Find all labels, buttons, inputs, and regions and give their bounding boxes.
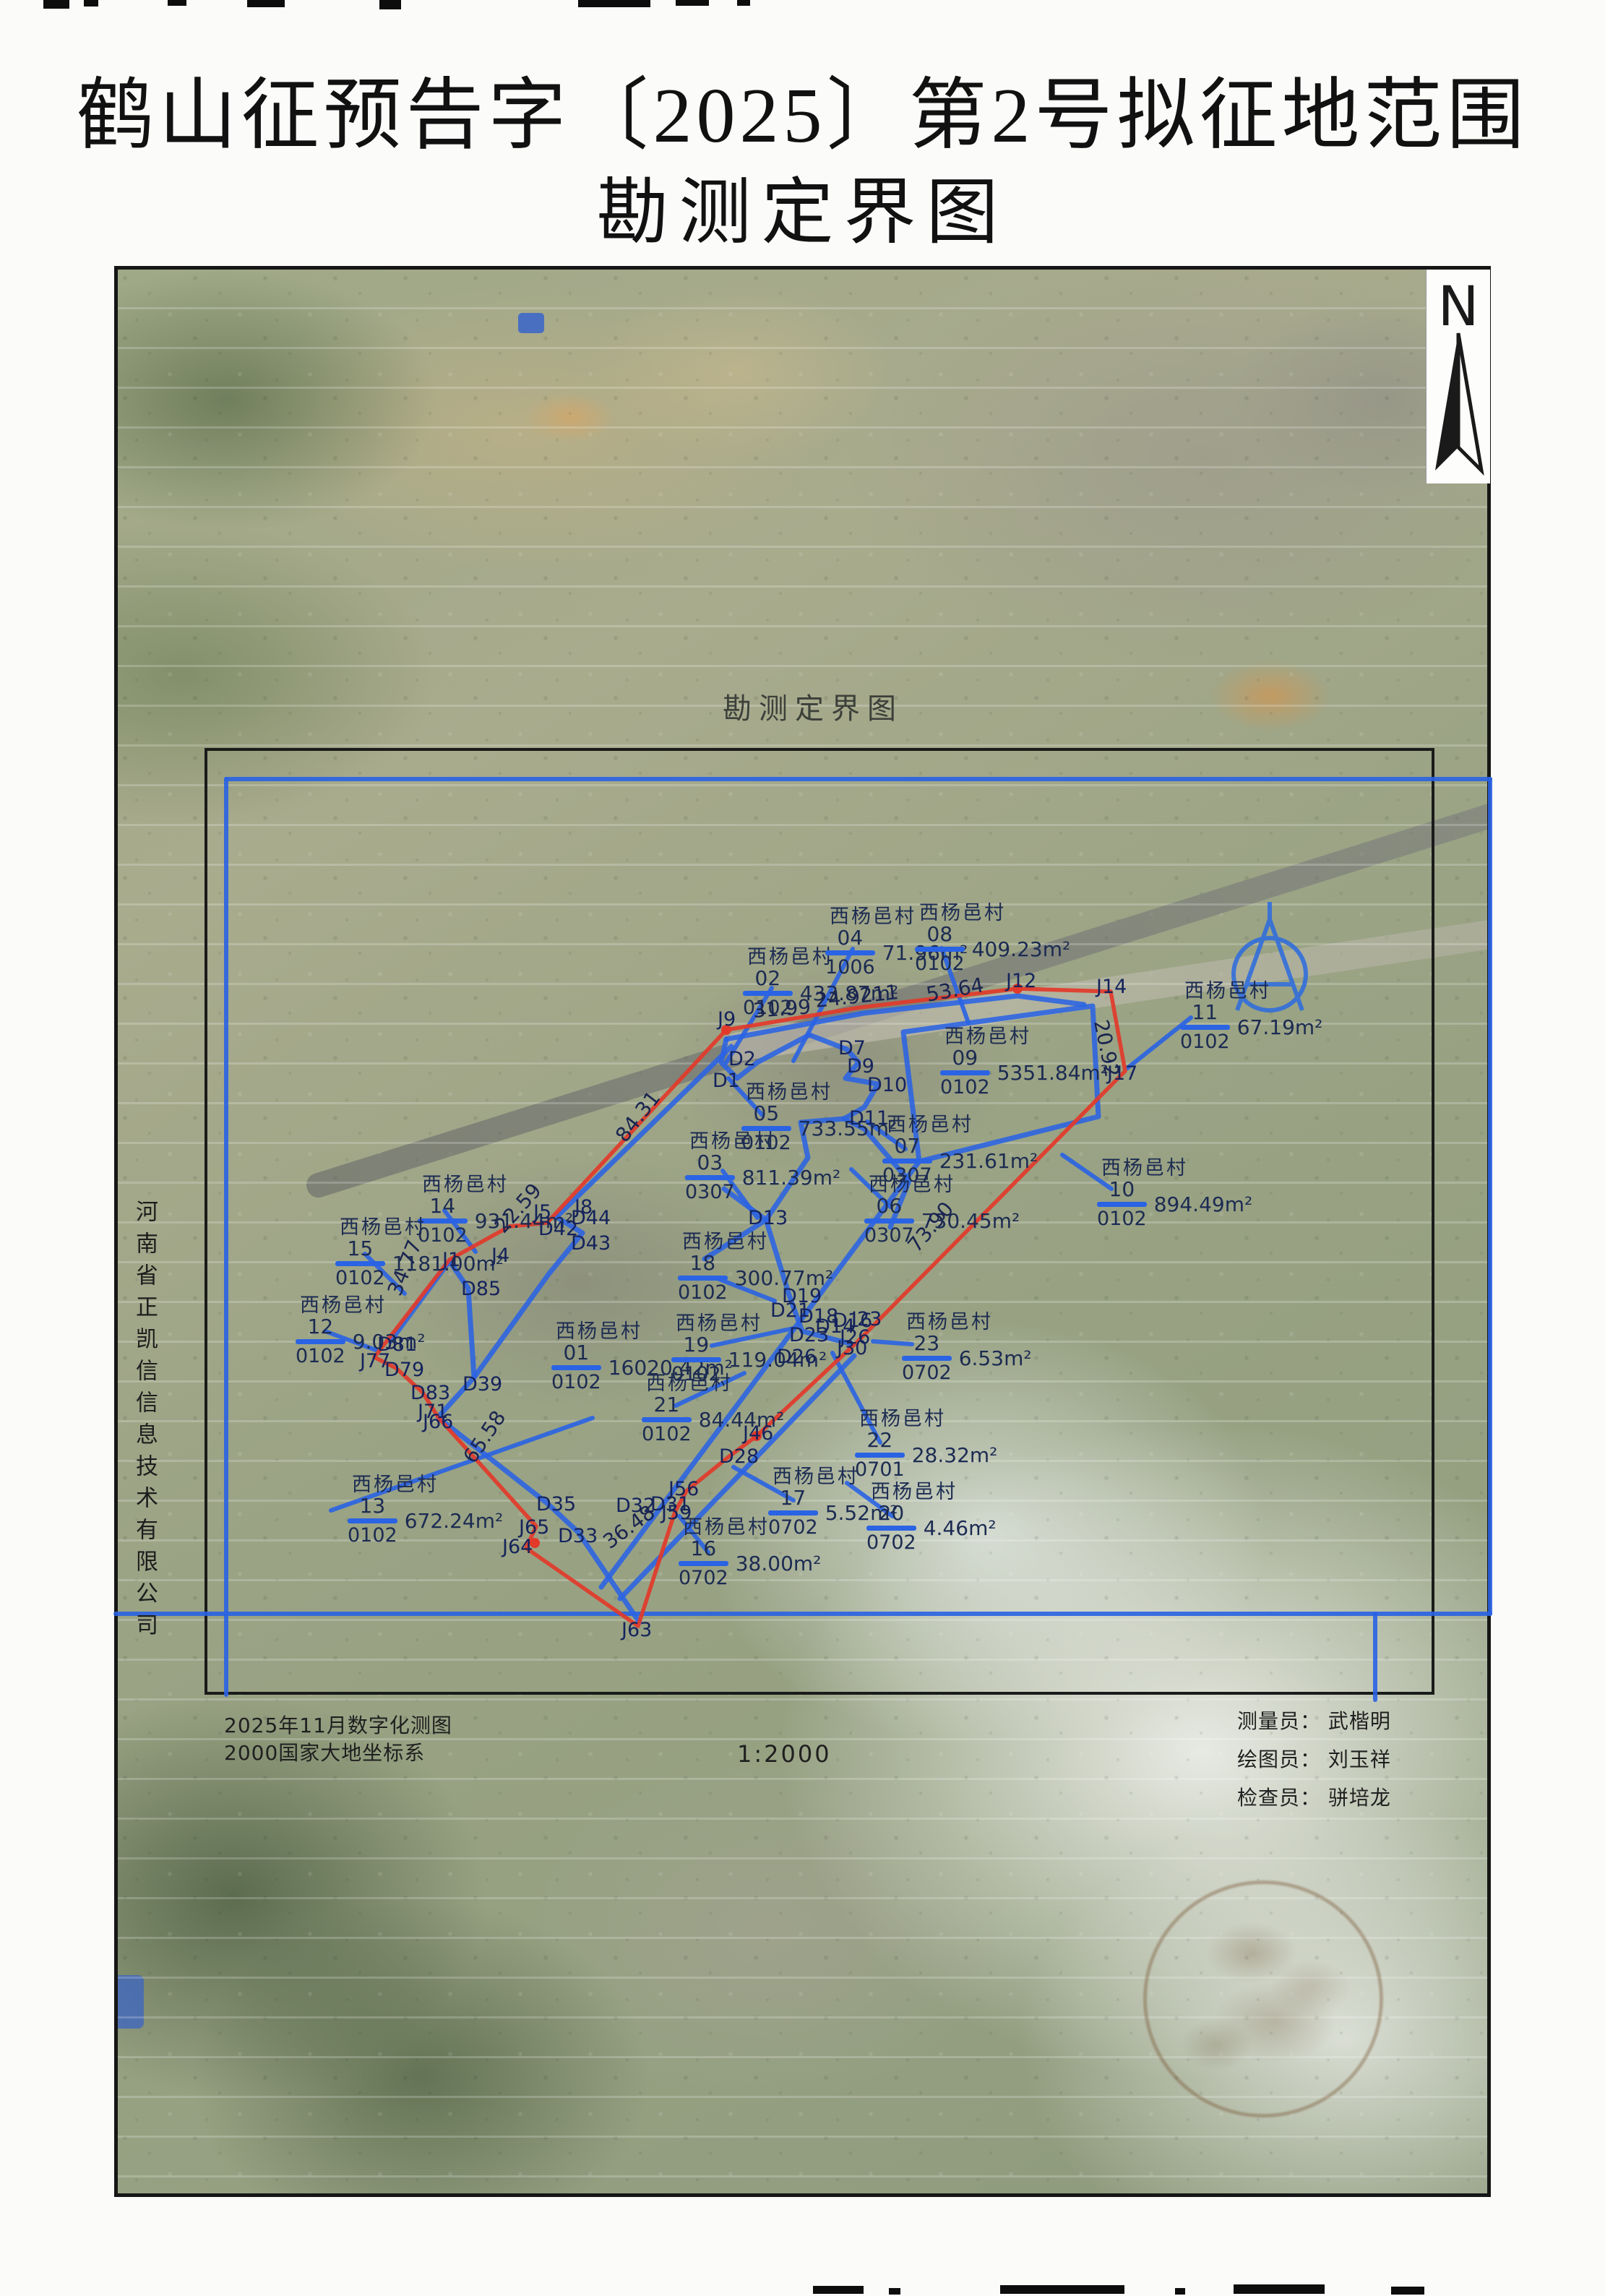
scan-artifact xyxy=(1000,2285,1124,2294)
scan-artifact xyxy=(379,0,401,9)
scan-artifact xyxy=(813,2286,864,2294)
company-name-vertical: 河南省正凯信信息技术有限公司 xyxy=(129,1200,161,1677)
scan-artifact xyxy=(1175,2288,1185,2295)
scan-artifact xyxy=(247,0,285,7)
staff-row: 测量员： 武楷明 xyxy=(1237,1706,1391,1734)
official-seal-stamp xyxy=(1143,1880,1383,2117)
scanned-survey-document: { "page": { "title_line1": "鹤山征预告字〔2025〕… xyxy=(0,0,1605,2296)
scan-artifact xyxy=(43,0,69,9)
scan-artifact xyxy=(737,0,750,6)
document-title-line2: 勘测定界图 xyxy=(0,153,1605,258)
scan-artifact xyxy=(168,0,186,6)
north-arrow-icon xyxy=(1427,329,1490,481)
north-arrow-box: N xyxy=(1426,270,1490,483)
scan-artifact xyxy=(1234,2284,1325,2294)
survey-note-line2: 2000国家大地坐标系 xyxy=(224,1737,425,1766)
scan-artifact xyxy=(676,0,709,6)
scan-artifact xyxy=(889,2288,900,2295)
staff-row: 绘图员： 刘玉祥 xyxy=(1237,1744,1391,1773)
map-scale: 1:2000 xyxy=(737,1740,832,1768)
scan-artifact xyxy=(84,0,98,7)
staff-row: 检查员： 骈培龙 xyxy=(1237,1782,1391,1811)
scan-artifact xyxy=(1391,2287,1424,2295)
document-title-line1: 鹤山征预告字〔2025〕第2号拟征地范围 xyxy=(0,52,1605,165)
scan-artifact xyxy=(578,0,650,7)
map-sublabel: 勘测定界图 xyxy=(723,685,903,727)
survey-note-line1: 2025年11月数字化测图 xyxy=(224,1710,452,1739)
staff-block: 测量员： 武楷明绘图员： 刘玉祥检查员： 骈培龙 xyxy=(1237,1706,1391,1820)
